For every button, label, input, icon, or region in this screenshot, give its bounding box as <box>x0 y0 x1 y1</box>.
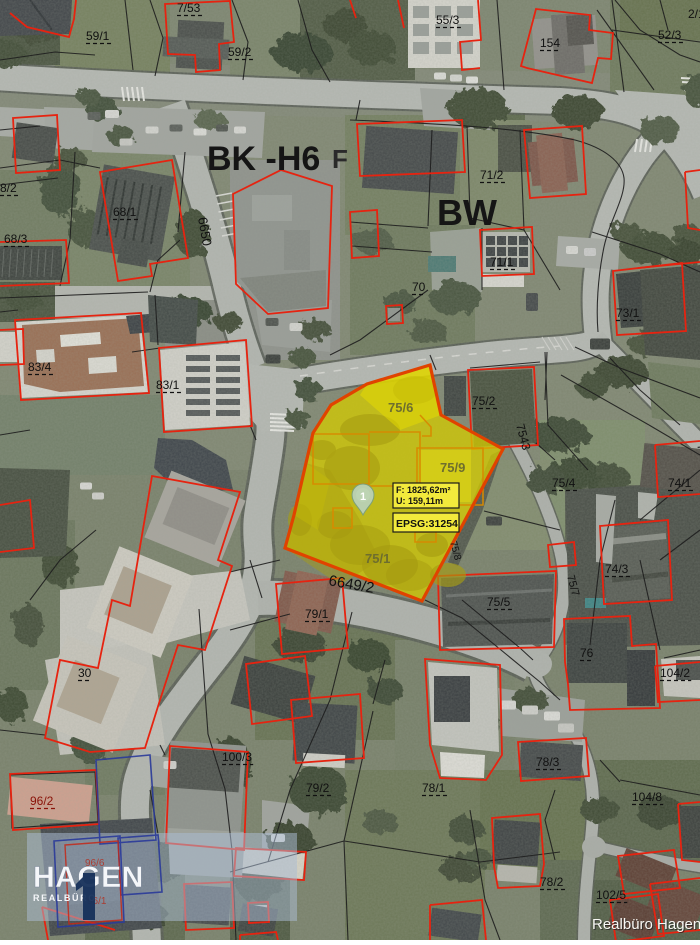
svg-text:73/1: 73/1 <box>616 306 640 320</box>
svg-text:8/2: 8/2 <box>0 181 17 195</box>
svg-text:76: 76 <box>580 646 594 660</box>
svg-text:F: F <box>332 144 348 174</box>
svg-text:68/1: 68/1 <box>113 205 137 219</box>
svg-text:79/2: 79/2 <box>306 781 330 795</box>
svg-text:Realbüro Hagen: Realbüro Hagen <box>592 916 700 933</box>
svg-text:30: 30 <box>78 666 92 680</box>
svg-text:EPSG:31254: EPSG:31254 <box>396 518 458 530</box>
svg-text:75/9: 75/9 <box>440 460 465 475</box>
svg-text:52/3: 52/3 <box>658 28 682 42</box>
svg-text:75/6: 75/6 <box>388 400 413 415</box>
svg-text:55/3: 55/3 <box>436 13 460 27</box>
svg-text:100/3: 100/3 <box>222 750 252 764</box>
svg-text:71/2: 71/2 <box>480 168 504 182</box>
svg-text:78/3: 78/3 <box>536 755 560 769</box>
svg-text:BK -H6: BK -H6 <box>207 140 320 178</box>
svg-text:75/4: 75/4 <box>552 476 576 490</box>
svg-text:102/5: 102/5 <box>596 888 626 902</box>
svg-text:74/1: 74/1 <box>668 476 692 490</box>
svg-text:154: 154 <box>540 36 560 50</box>
svg-text:75/2: 75/2 <box>472 394 496 408</box>
svg-text:70: 70 <box>412 280 426 294</box>
svg-text:79/1: 79/1 <box>305 607 329 621</box>
svg-text:F: 1825,62m²: F: 1825,62m² <box>396 485 451 495</box>
svg-text:75/5: 75/5 <box>487 595 511 609</box>
svg-text:59/2: 59/2 <box>228 45 252 59</box>
svg-text:78/2: 78/2 <box>540 875 564 889</box>
svg-text:1: 1 <box>360 491 366 503</box>
svg-text:68/3: 68/3 <box>4 232 28 246</box>
svg-text:75/1: 75/1 <box>365 551 390 566</box>
svg-text:2/1: 2/1 <box>688 7 700 21</box>
svg-text:BW: BW <box>437 192 497 233</box>
svg-text:83/1: 83/1 <box>156 378 180 392</box>
svg-text:78/1: 78/1 <box>422 781 446 795</box>
svg-text:104/8: 104/8 <box>632 790 662 804</box>
svg-text:7/53: 7/53 <box>177 1 201 15</box>
svg-text:74/3: 74/3 <box>605 562 629 576</box>
svg-text:U: 159,11m: U: 159,11m <box>396 496 443 506</box>
svg-text:96/2: 96/2 <box>30 794 54 808</box>
svg-text:59/1: 59/1 <box>86 29 110 43</box>
svg-text:71/1: 71/1 <box>490 255 514 269</box>
svg-text:104/2: 104/2 <box>660 666 690 680</box>
svg-text:83/4: 83/4 <box>28 360 52 374</box>
